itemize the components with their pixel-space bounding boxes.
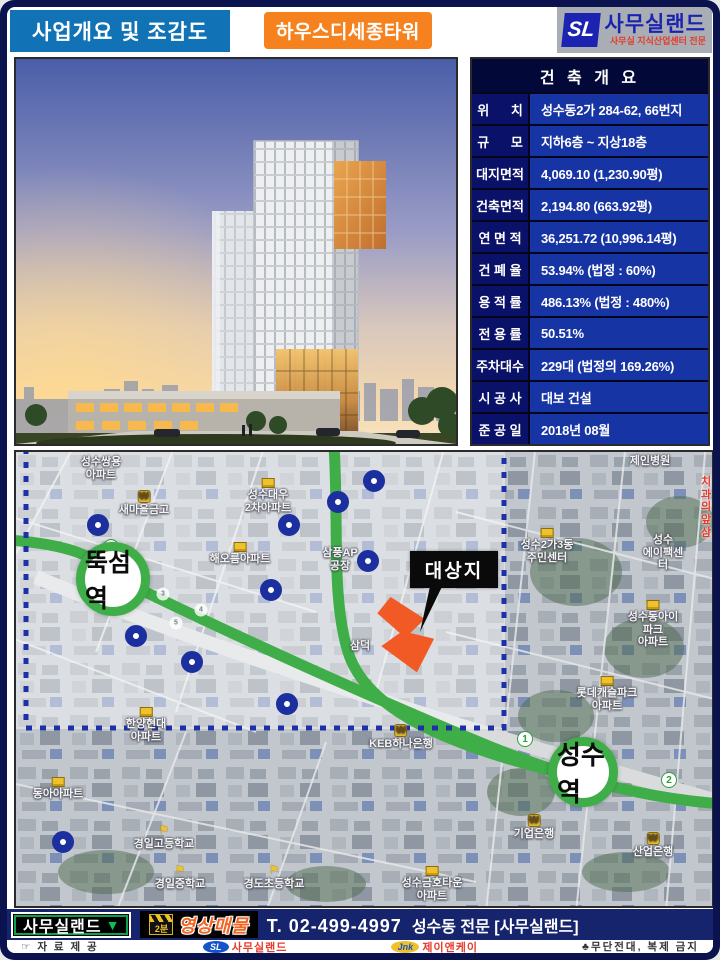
poi-marker xyxy=(125,625,147,647)
row-value: 2,194.80 (663.92평) xyxy=(530,190,708,220)
jnk-name: 제이앤케이 xyxy=(422,939,478,954)
logo-sl-icon: SL xyxy=(562,13,602,47)
map-label: ⚑경일중학교 xyxy=(155,864,206,891)
clapperboard-icon: 2분 xyxy=(149,914,173,935)
poi-marker xyxy=(363,470,385,492)
video-minutes: 2분 xyxy=(150,922,172,935)
target-site-callout: 대상지 xyxy=(410,551,498,588)
table-row: 연 면 적36,251.72 (10,996.14평) xyxy=(472,222,708,254)
poi-marker xyxy=(87,514,109,536)
table-row: 규 모지하6층 ~ 지상18층 xyxy=(472,126,708,158)
row-label: 연 면 적 xyxy=(472,222,530,252)
building-rendering-image xyxy=(16,59,456,444)
table-row: 주차대수229대 (법정의 169.26%) xyxy=(472,350,708,382)
copy-notice: ♣무단전대, 복제 금지 xyxy=(582,939,699,953)
page: 사업개요 및 조감도 하우스디세종타워 SL 사무실랜드 사무실 지식산업센터 … xyxy=(0,0,720,960)
map-label: ⚑경일고등학교 xyxy=(134,824,195,851)
map-label: ₩KEB하나은행 xyxy=(369,724,433,751)
line-number-badge: 5 xyxy=(170,617,183,630)
poi-marker xyxy=(276,693,298,715)
bldg-icon xyxy=(261,478,274,488)
map-label: 치과의 앞삼 xyxy=(701,476,711,539)
section-title-badge: 사업개요 및 조감도 xyxy=(10,10,230,52)
map-label: 성수2가3동 주민센터 xyxy=(521,528,574,564)
logo-name: 사무실랜드 xyxy=(604,14,706,35)
tagline: 성수동 전문 [사무실랜드] xyxy=(412,913,579,937)
row-value: 36,251.72 (10,996.14평) xyxy=(530,222,708,252)
row-value: 4,069.10 (1,230.90평) xyxy=(530,158,708,188)
won-icon: ₩ xyxy=(646,832,659,845)
row-label: 대지면적 xyxy=(472,158,530,188)
table-row: 위 치성수동2가 284-62, 66번지 xyxy=(472,94,708,126)
bldg-icon xyxy=(51,777,64,787)
map-label: 제인병원 xyxy=(630,455,670,468)
map-label: ₩새마을금고 xyxy=(119,490,170,517)
row-label: 규 모 xyxy=(472,126,530,156)
video-label: 영상매물 xyxy=(178,912,248,938)
table-row: 건 폐 율53.94% (법정 : 60%) xyxy=(472,254,708,286)
contact-info: T. 02-499-4997 성수동 전문 [사무실랜드] xyxy=(267,913,579,937)
map-label: ⚑경도초등학교 xyxy=(244,864,305,891)
poi-marker xyxy=(327,491,349,513)
jnk-oval-icon: Jnk xyxy=(391,941,419,953)
table-row: 건축면적2,194.80 (663.92평) xyxy=(472,190,708,222)
map-label: ₩기업은행 xyxy=(514,814,554,841)
bottom-bar: 사무실랜드 ▼ 2분 영상매물 T. 02-499-4997 성수동 전문 [사… xyxy=(7,909,713,940)
sl-name: 사무실랜드 xyxy=(232,939,288,954)
row-label: 건 폐 율 xyxy=(472,254,530,284)
flag-icon: ⚑ xyxy=(173,864,186,877)
poi-marker xyxy=(278,514,300,536)
row-value: 486.13% (법정 : 480%) xyxy=(530,286,708,316)
source-note: ☞ 자 료 제 공 xyxy=(21,939,99,953)
table-row: 대지면적4,069.10 (1,230.90평) xyxy=(472,158,708,190)
map-label: ₩산업은행 xyxy=(633,832,673,859)
poi-marker xyxy=(181,651,203,673)
row-value: 지하6층 ~ 지상18층 xyxy=(530,126,708,156)
logo-subtitle: 사무실 지식산업센터 전문 xyxy=(610,37,706,46)
brand-box: 사무실랜드 ▼ xyxy=(11,912,131,938)
map-label: 한양현대 아파트 xyxy=(126,707,166,743)
bldg-icon xyxy=(541,528,554,538)
table-row: 용 적 률486.13% (법정 : 480%) xyxy=(472,286,708,318)
row-label: 시 공 사 xyxy=(472,382,530,412)
bldg-icon xyxy=(425,866,438,876)
table-row: 준 공 일2018년 08월 xyxy=(472,414,708,444)
bldg-icon xyxy=(647,600,660,610)
video-listing-box: 2분 영상매물 xyxy=(140,911,257,938)
row-label: 전 용 률 xyxy=(472,318,530,348)
line-number-badge: 1 xyxy=(517,731,533,747)
line-number-badge: 3 xyxy=(157,588,170,601)
table-rows: 위 치성수동2가 284-62, 66번지규 모지하6층 ~ 지상18층대지면적… xyxy=(472,94,708,444)
map-label: 삼덕 xyxy=(350,640,370,653)
table-row: 시 공 사대보 건설 xyxy=(472,382,708,414)
company-logo: SL 사무실랜드 사무실 지식산업센터 전문 xyxy=(557,7,712,53)
row-value: 대보 건설 xyxy=(530,382,708,412)
map-label: 동아아파트 xyxy=(33,777,84,801)
row-label: 주차대수 xyxy=(472,350,530,380)
row-value: 229대 (법정의 169.26%) xyxy=(530,350,708,380)
map-label: 성수동아이파크 아파트 xyxy=(624,600,683,649)
building-name-badge: 하우스디세종타워 xyxy=(264,12,432,49)
map-label: 해오름아파트 xyxy=(210,542,271,566)
flag-icon: ⚑ xyxy=(157,824,170,837)
row-label: 위 치 xyxy=(472,94,530,124)
row-label: 준 공 일 xyxy=(472,414,530,444)
row-value: 50.51% xyxy=(530,318,708,348)
bldg-icon xyxy=(233,542,246,552)
flag-icon: ⚑ xyxy=(267,864,280,877)
footer: ☞ 자 료 제 공 SL 사무실랜드 Jnk 제이앤케이 ♣무단전대, 복제 금… xyxy=(7,940,713,953)
map-label: 성수쌍용 아파트 xyxy=(81,456,121,481)
station-badge-ttukseom: 뚝섬역 xyxy=(76,542,150,616)
map-label: 성수 에이팩센터 xyxy=(639,534,688,572)
footer-jnk-logo: Jnk 제이앤케이 xyxy=(391,939,478,954)
poi-marker xyxy=(52,831,74,853)
won-icon: ₩ xyxy=(527,814,540,827)
map-label: 성수금호타운 아파트 xyxy=(402,866,463,902)
poi-marker xyxy=(357,550,379,572)
won-icon: ₩ xyxy=(395,724,408,737)
table-row: 전 용 률50.51% xyxy=(472,318,708,350)
map-label: 성수대우 2차아파트 xyxy=(245,478,292,514)
location-map: 대상지 성수쌍용 아파트₩새마을금고성수대우 2차아파트해오름아파트삼풍AP 공… xyxy=(14,450,713,908)
building-overview-table: 건 축 개 요 위 치성수동2가 284-62, 66번지규 모지하6층 ~ 지… xyxy=(470,57,710,446)
brand-arrow-icon: ▼ xyxy=(106,917,120,933)
brand-name: 사무실랜드 xyxy=(23,913,102,937)
row-value: 성수동2가 284-62, 66번지 xyxy=(530,94,708,124)
phone-number: T. 02-499-4997 xyxy=(267,916,402,937)
row-label: 건축면적 xyxy=(472,190,530,220)
building-rendering xyxy=(14,57,458,446)
row-value: 2018년 08월 xyxy=(530,414,708,444)
page-inner: 사업개요 및 조감도 하우스디세종타워 SL 사무실랜드 사무실 지식산업센터 … xyxy=(7,7,713,953)
map-label: 삼풍AP 공장 xyxy=(322,547,358,572)
line-number-badge: 2 xyxy=(661,772,677,788)
station-badge-seongsu: 성수역 xyxy=(548,737,618,807)
map-label: 롯데캐슬파크 아파트 xyxy=(577,676,638,712)
won-icon: ₩ xyxy=(137,490,150,503)
line-number-badge: 4 xyxy=(195,604,208,617)
row-label: 용 적 률 xyxy=(472,286,530,316)
row-value: 53.94% (법정 : 60%) xyxy=(530,254,708,284)
footer-sl-logo: SL 사무실랜드 xyxy=(203,939,288,954)
table-title: 건 축 개 요 xyxy=(472,59,708,94)
bldg-icon xyxy=(139,707,152,717)
poi-marker xyxy=(260,579,282,601)
sl-oval-icon: SL xyxy=(203,941,229,953)
bldg-icon xyxy=(600,676,613,686)
